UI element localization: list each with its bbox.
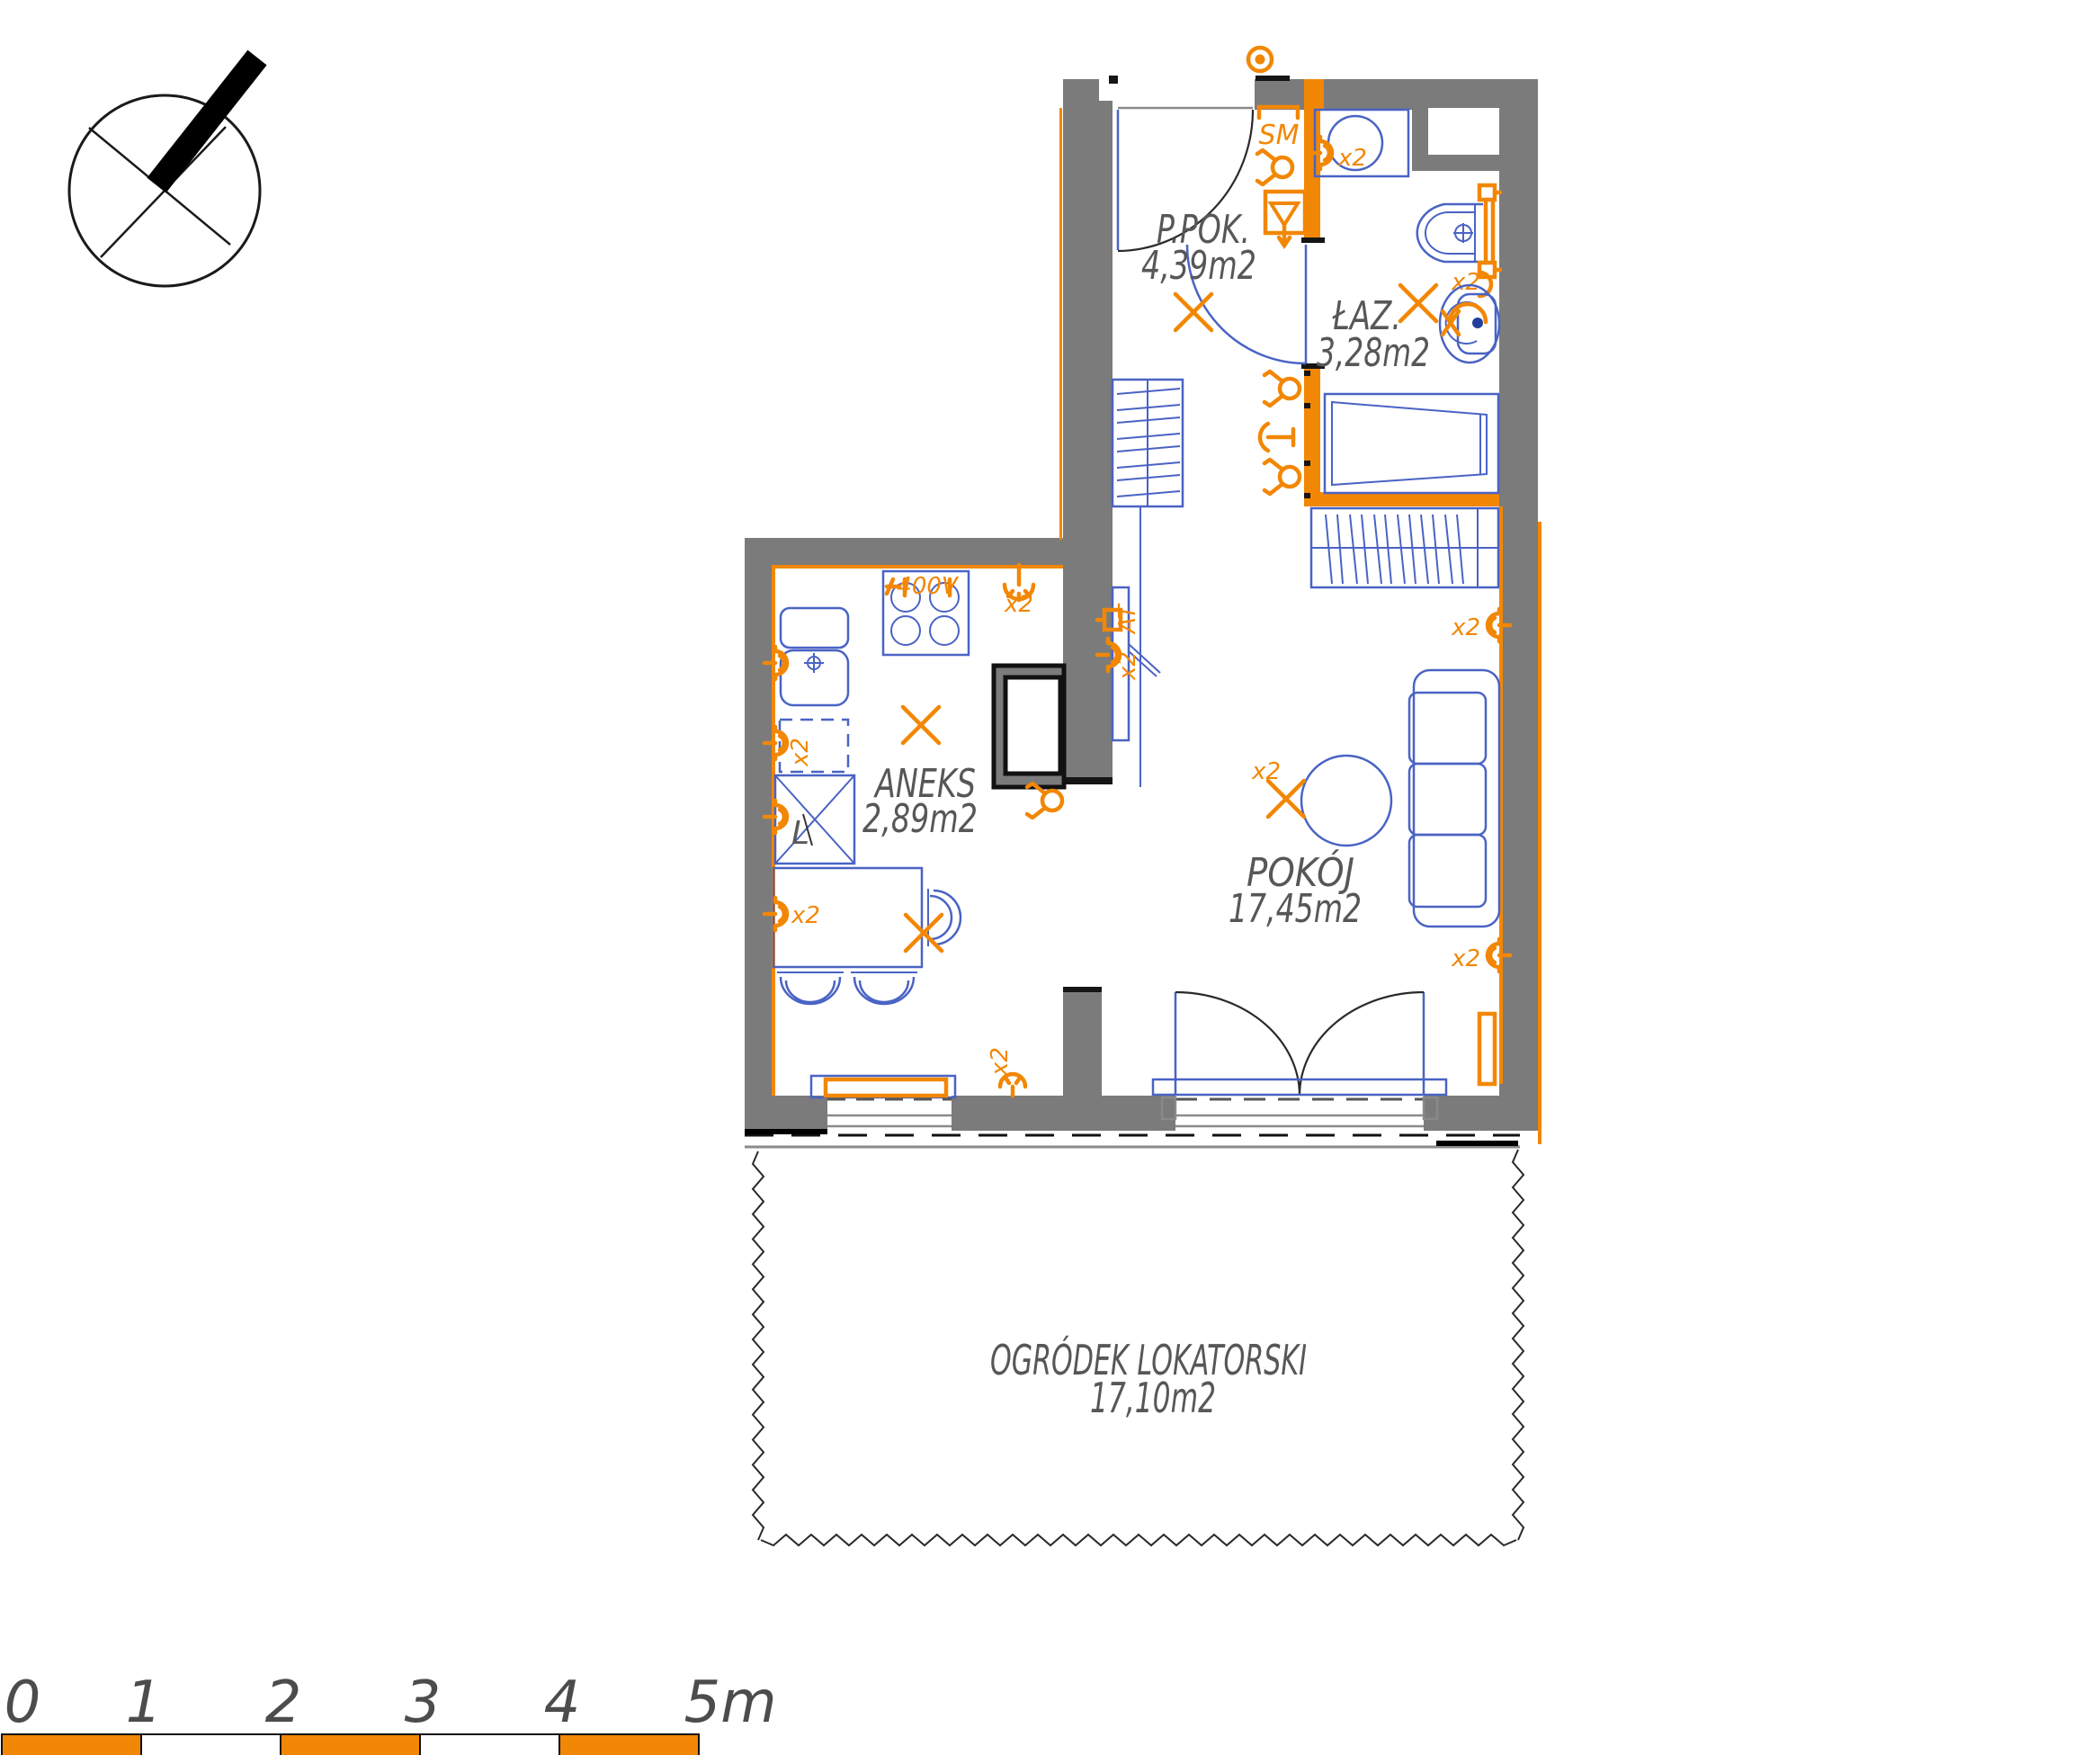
chair-right: [928, 889, 961, 946]
wall-pier: [1063, 989, 1102, 1096]
wall-kitchen-left: [745, 538, 772, 1131]
key-switch-icon: [1257, 150, 1292, 184]
bathroom-area: 3,28m2: [1317, 330, 1430, 376]
ceiling-lamp-icon: x2: [1004, 565, 1033, 618]
kitchen-window: [811, 1076, 955, 1126]
niche-recess: [1428, 108, 1499, 155]
svg-text:x2: x2: [1114, 651, 1141, 681]
light-count: x2: [1251, 758, 1281, 785]
wall-light-icon: [1260, 424, 1293, 451]
radiator-icon: [1479, 1014, 1495, 1084]
socket-count: x2: [1337, 145, 1367, 172]
wall-end-cap-b: [1063, 987, 1102, 992]
tenant-garden: OGRÓDEK LOKATORSKI 17,10m2: [745, 1132, 1524, 1545]
radiator-count: x2: [1451, 269, 1480, 296]
fridge-letter: L: [791, 815, 809, 852]
bathtub: [1325, 394, 1498, 493]
svg-text:x2: x2: [1451, 945, 1480, 972]
scale-tick-3: 3: [405, 1670, 442, 1736]
room-wardrobe: [1311, 508, 1498, 587]
socket-count: x2: [791, 902, 820, 929]
radiator-icon: [826, 1079, 946, 1096]
ceiling-light-icon: [906, 915, 942, 951]
kitchenette-aneks: L 400V x2 ANEKS 2,89m2 x2: [764, 565, 1064, 1126]
tick-4: [1304, 493, 1310, 498]
switch-icon-a: [1264, 372, 1300, 406]
compass-cross-lines: [89, 127, 230, 257]
scale-seg-4: [420, 1734, 559, 1755]
garden-zigzag-bottom: [761, 1535, 1516, 1545]
scale-seg-3: [281, 1734, 420, 1755]
dining-set: [773, 868, 961, 1004]
duct-shaft: [994, 666, 1064, 787]
door-lintel-mark: [1256, 76, 1290, 81]
floor-plan-canvas: P.POK. 4,39m2 SM x2: [0, 0, 2100, 1755]
wall-kitchen-top: [745, 538, 1068, 565]
toilet: [1417, 204, 1483, 262]
ceiling-light-icon: [903, 707, 939, 743]
scale-tick-1: 1: [126, 1670, 163, 1736]
scale-seg-2: [141, 1734, 281, 1755]
wall-right: [1499, 79, 1538, 1131]
partition-cap-a: [1301, 237, 1325, 243]
antenna-label: AT: [1114, 603, 1141, 635]
doorbell-icon: [1265, 192, 1305, 246]
kitchen-sink: [781, 650, 848, 705]
bath-bottom-wall: [1304, 492, 1499, 506]
entry-point-dot: [1256, 55, 1265, 65]
partition-lower: [1304, 369, 1320, 492]
socket-right-wall-b: x2: [1451, 939, 1510, 972]
tick-3: [1304, 461, 1310, 466]
tick-2: [1304, 403, 1310, 408]
compass-north-indicator: [69, 58, 260, 286]
sofa: [1409, 670, 1499, 927]
living-room-pokoj: x2 POKÓJ 17,45m2 AT x2 x2 x2: [1097, 508, 1510, 1126]
scale-tick-2: 2: [265, 1670, 302, 1736]
partition-head: [1304, 79, 1324, 110]
kitchenette-area: 2,89m2: [862, 796, 978, 842]
ceiling-light-icon: [1175, 294, 1211, 330]
bracket-icon: [1259, 107, 1298, 118]
hall-area: 4,39m2: [1141, 243, 1256, 289]
scale-tick-5: 5m: [684, 1670, 776, 1736]
chair-bottom-1: [777, 972, 844, 1004]
living-room-area: 17,45m2: [1229, 886, 1362, 932]
garden-lamp-icon: x2: [987, 1047, 1025, 1096]
smoke-detector-label: SM: [1259, 120, 1300, 151]
wall-left-upper: [1063, 79, 1113, 784]
scale-seg-1: [2, 1734, 141, 1755]
scale-tick-4: 4: [544, 1670, 581, 1736]
jamb-mark: [1109, 76, 1118, 84]
scale-seg-5: [559, 1734, 699, 1755]
svg-text:x2: x2: [987, 1047, 1014, 1077]
ceiling-light-icon: [1400, 285, 1436, 321]
socket-right-wall-a: x2: [1451, 609, 1510, 641]
hall-wardrobe: [1113, 380, 1183, 506]
chair-bottom-2: [851, 972, 917, 1004]
garden-zigzag-right: [1513, 1150, 1524, 1540]
counter-segment: [781, 608, 848, 648]
tick-1: [1304, 371, 1310, 376]
finish-line-left-outer: [1059, 108, 1062, 540]
switch-icon-b: [1264, 460, 1300, 494]
drain-dot: [1472, 318, 1483, 328]
svg-text:x2: x2: [1451, 614, 1480, 641]
scale-bar: 0 1 2 3 4 5m: [2, 1670, 777, 1755]
garden-area: 17,10m2: [1090, 1374, 1216, 1422]
garden-zigzag-left: [753, 1151, 764, 1540]
power-label-400v: 400V: [887, 573, 960, 600]
scale-tick-0: 0: [4, 1670, 41, 1736]
wall-bottom-b: [952, 1096, 1175, 1131]
power-value: 400V: [897, 573, 960, 600]
socket-count: x2: [787, 738, 814, 767]
svg-text:x2: x2: [1004, 591, 1033, 618]
round-table: [1301, 756, 1391, 846]
north-arrow-icon: [156, 58, 257, 185]
terrace-french-door: [1153, 992, 1446, 1126]
towel-radiator: [1479, 185, 1500, 277]
ceiling-light-icon: [1268, 781, 1304, 817]
finish-line-right-outer: [1538, 522, 1541, 1144]
wall-bottom-a: [745, 1096, 827, 1131]
wall-end-cap-a: [1063, 777, 1113, 784]
